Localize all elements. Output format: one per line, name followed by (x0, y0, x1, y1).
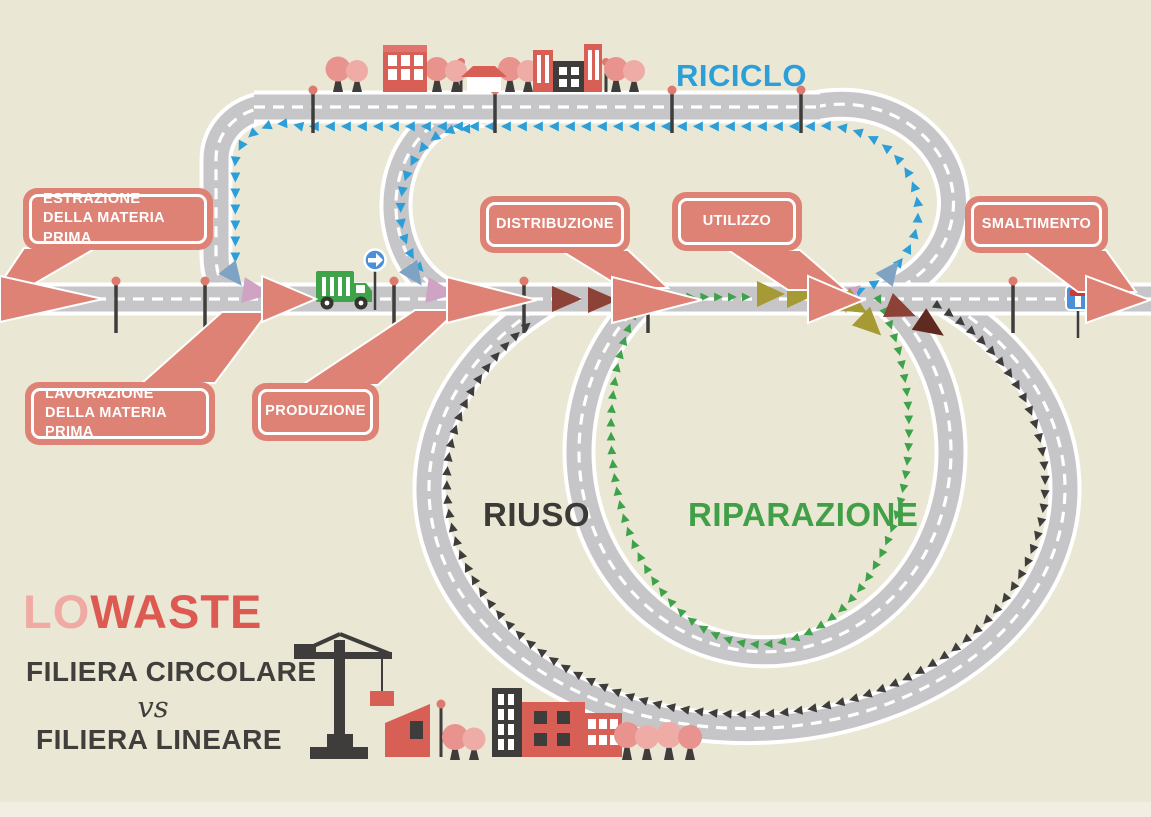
callout-tail-produzione (302, 310, 458, 385)
callout-estrazione: ESTRAZIONE DELLA MATERIA PRIMA (23, 188, 213, 250)
brand-title: LOWASTE (23, 584, 262, 639)
callout-utilizzo: UTILIZZO (672, 192, 802, 251)
callout-produzione: PRODUZIONE (252, 383, 379, 441)
subtitle-vs: vs (118, 690, 188, 724)
callout-estrazione-label: ESTRAZIONE DELLA MATERIA PRIMA (43, 190, 204, 247)
riuso-label: RIUSO (483, 496, 590, 534)
top-skyline (326, 44, 646, 92)
subtitle-lineare: FILIERA LINEARE (36, 724, 282, 756)
infographic-canvas: ▶▶▶▶▶▶▶▶▶▶▶▶▶▶▶▶▶▶▶▶▶▶▶▶▶▶▶▶▶▶▶▶▶▶▶▶▶▶▶▶… (0, 0, 1151, 817)
callout-distribuzione-label: DISTRIBUZIONE (496, 215, 614, 234)
building-icon (533, 44, 602, 92)
street-lamps (116, 64, 1013, 757)
callout-lavorazione-label: LAVORAZIONE DELLA MATERIA PRIMA (45, 385, 206, 442)
brand-lo: LO (23, 585, 90, 638)
callout-smaltimento-label: SMALTIMENTO (982, 215, 1091, 234)
brand-waste: WASTE (90, 585, 262, 638)
riparazione-label: RIPARAZIONE (688, 496, 918, 534)
callout-smaltimento: SMALTIMENTO (965, 196, 1108, 253)
tree-icon (442, 724, 486, 760)
subtitle-circolare: FILIERA CIRCOLARE (26, 656, 317, 688)
callout-utilizzo-label: UTILIZZO (703, 212, 771, 231)
crane-icon (294, 634, 394, 759)
riciclo-label: RICICLO (676, 58, 807, 94)
building-icon (383, 45, 427, 92)
callout-produzione-label: PRODUZIONE (265, 402, 366, 421)
house-icon (385, 704, 430, 757)
ground-strip (0, 802, 1151, 817)
callout-lavorazione: LAVORAZIONE DELLA MATERIA PRIMA (25, 382, 215, 445)
callout-distribuzione: DISTRIBUZIONE (480, 196, 630, 253)
